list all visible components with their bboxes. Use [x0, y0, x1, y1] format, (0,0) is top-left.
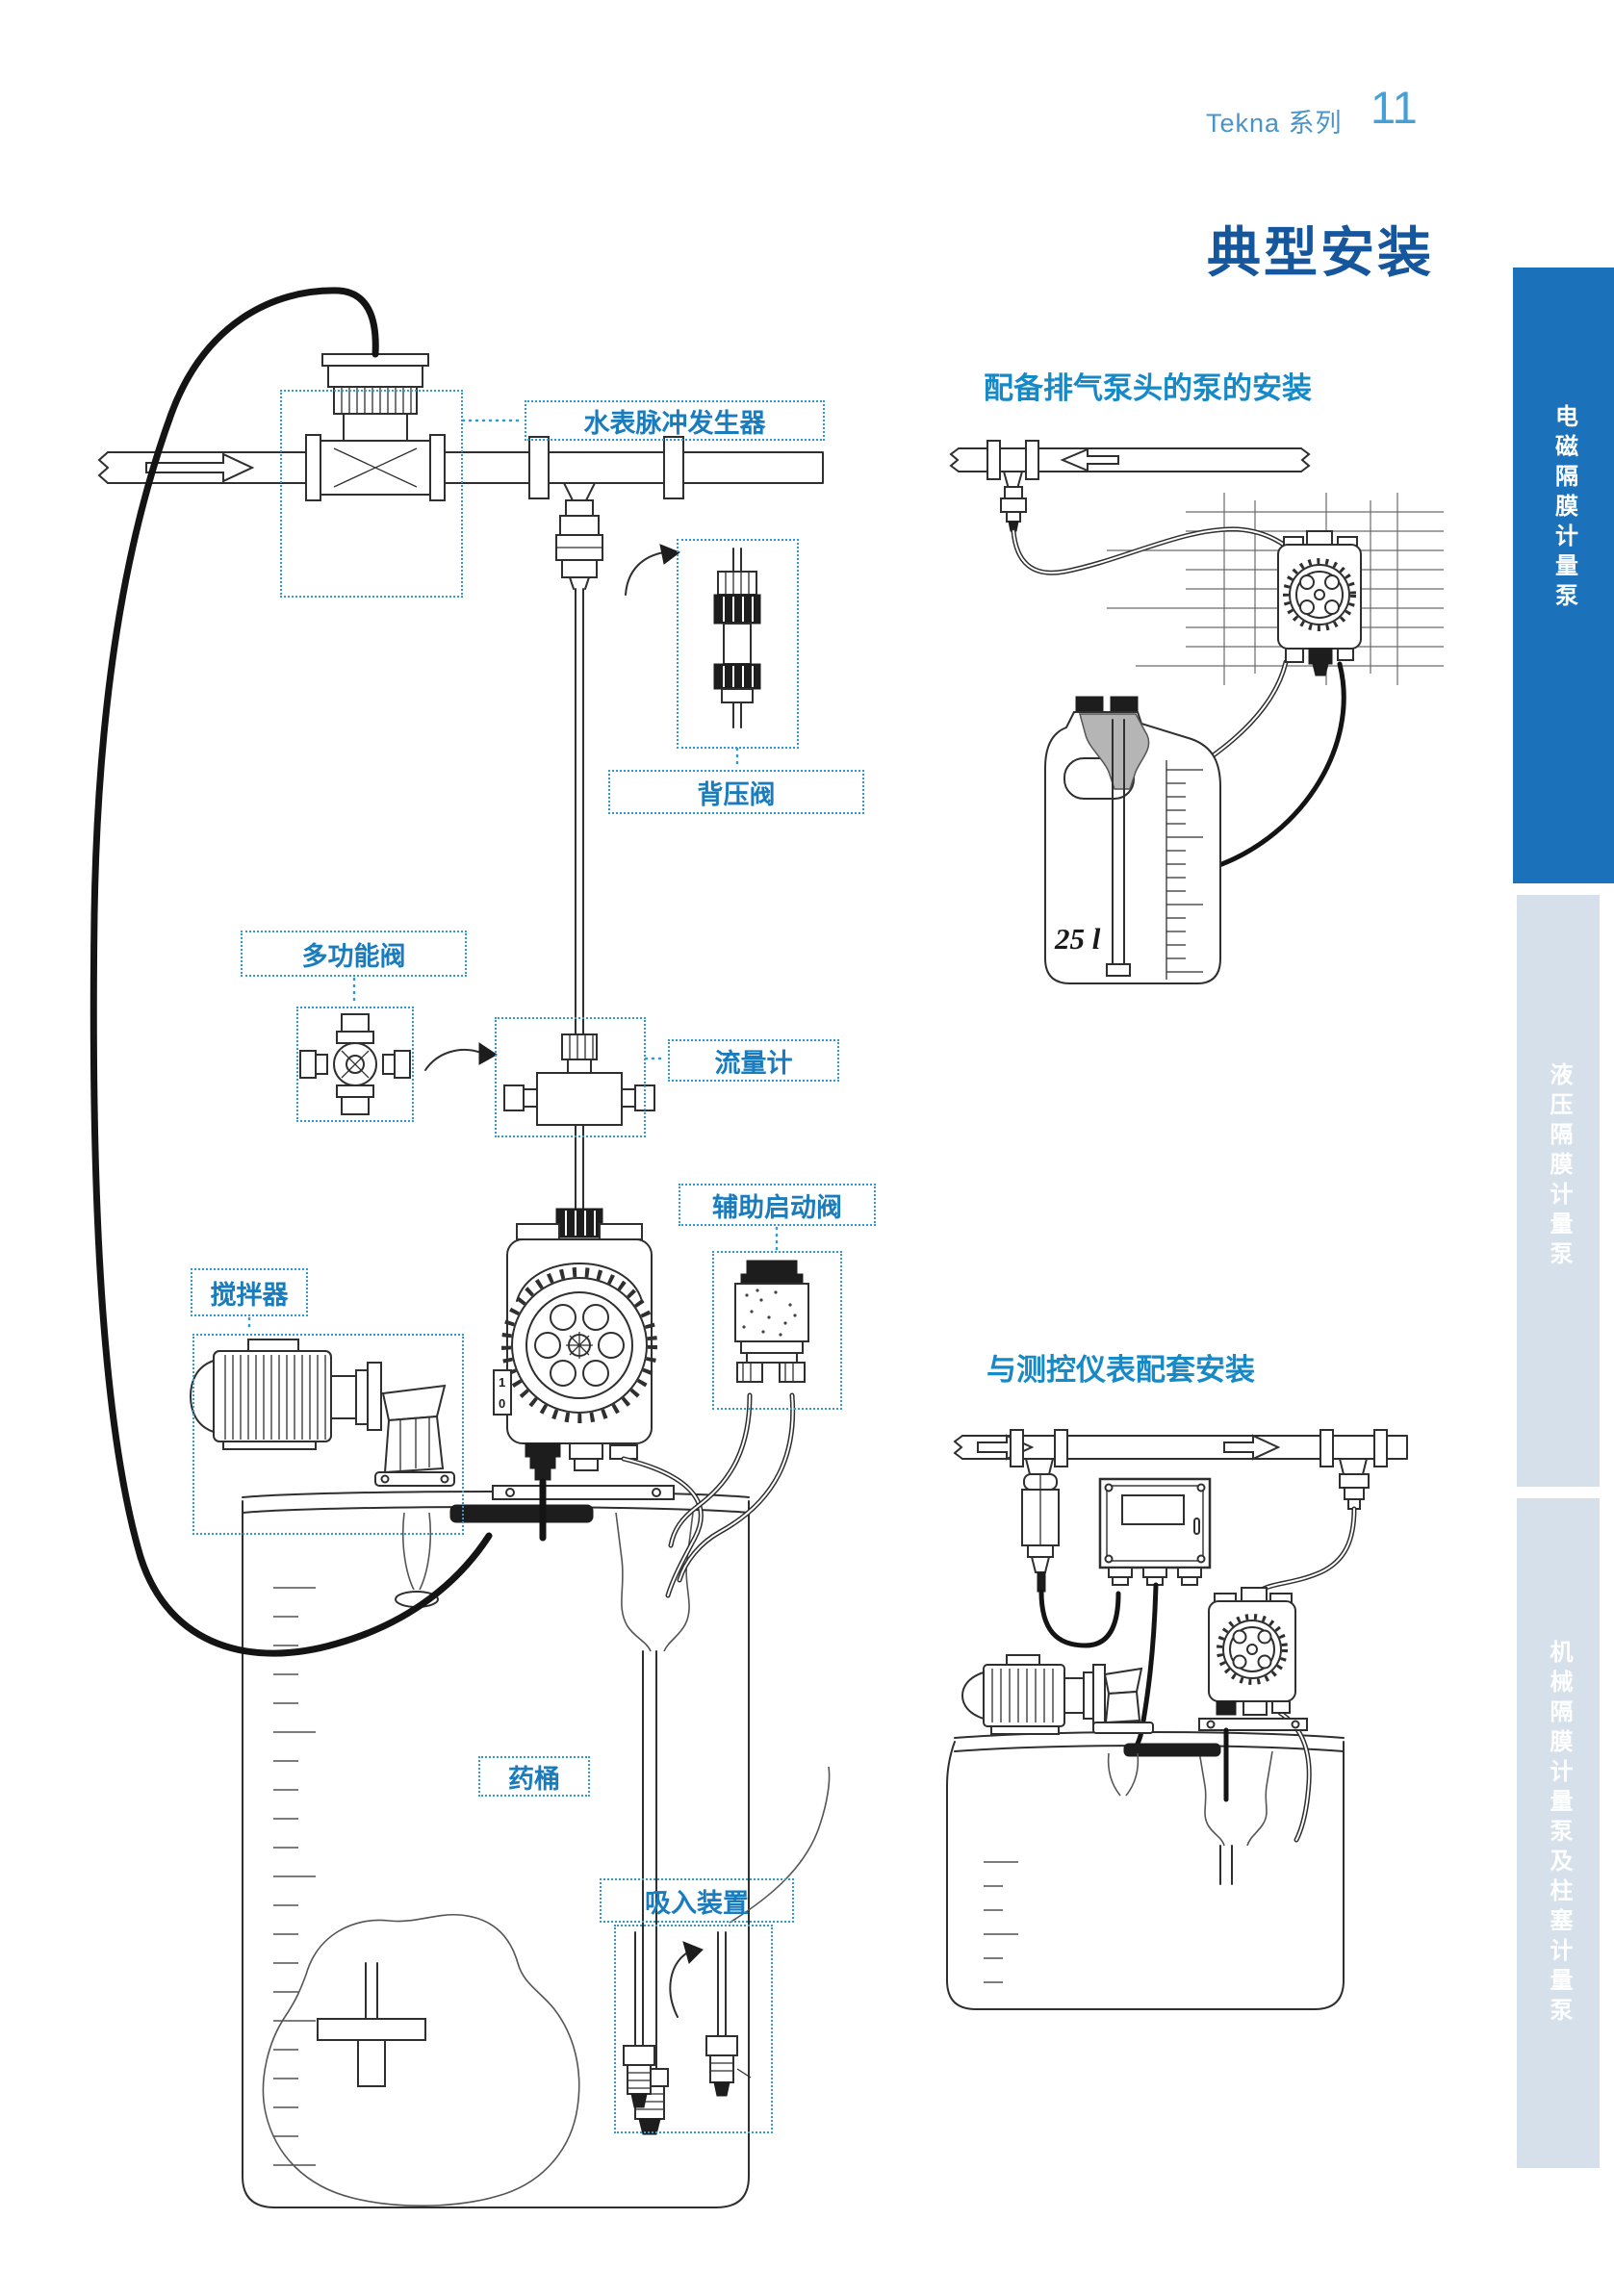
heading-instrument-install: 与测控仪表配套安装 — [986, 1345, 1255, 1389]
metering-pump-icon: 1 0 — [493, 1209, 674, 1538]
metering-pump-icon — [1278, 531, 1361, 676]
diagrams-canvas: 1 0 — [0, 0, 1614, 2296]
page-number: 11 — [1371, 81, 1418, 134]
back-pressure-valve-detail-box — [677, 539, 799, 749]
agitator-label: 搅拌器 — [191, 1268, 308, 1316]
water-meter-detail-box — [280, 390, 463, 598]
degassing-pump-diagram — [951, 441, 1444, 983]
sidebar-tab-mechanical-plunger-pumps[interactable]: 机械隔膜计量泵及柱塞计量泵 — [1517, 1498, 1600, 2168]
flow-arrow-right-icon — [146, 454, 252, 481]
catalog-page: 1 0 — [0, 0, 1614, 2296]
rotate-arrow-icon — [425, 1050, 481, 1070]
pump-switch-off-label: 0 — [499, 1396, 505, 1411]
dosing-line-lower — [576, 1125, 583, 1209]
aux-start-valve-detail-box — [712, 1251, 842, 1410]
aux-start-valve-label-text: 辅助启动阀 — [712, 1186, 842, 1224]
sensor-probe-icon — [1022, 1459, 1059, 1592]
multifunction-valve-detail-box — [296, 1007, 414, 1122]
instrument-diagram — [947, 1430, 1407, 2009]
page-header-series: Tekna 系列 — [1206, 102, 1343, 140]
controller-screen — [1122, 1495, 1184, 1524]
agitator-detail-box — [192, 1334, 464, 1535]
agitator-label-text: 搅拌器 — [211, 1274, 289, 1312]
pump-switch-on-label: 1 — [499, 1375, 505, 1390]
sensor-cable — [1041, 1592, 1118, 1645]
flow-meter-label: 流量计 — [668, 1039, 839, 1082]
tube-lines — [1255, 1509, 1354, 1595]
sidebar-tab-solenoid-diaphragm-pumps[interactable]: 电磁隔膜计量泵 — [1513, 268, 1614, 883]
pipe-icon — [955, 1430, 1407, 1467]
back-pressure-valve-label-text: 背压阀 — [698, 774, 776, 811]
wall-grid — [1107, 493, 1444, 685]
injection-valve-icon — [556, 483, 602, 589]
injection-valve-icon — [1340, 1459, 1369, 1509]
flow-meter-label-text: 流量计 — [715, 1042, 793, 1080]
flow-meter-detail-box — [495, 1017, 646, 1137]
multifunction-valve-label-text: 多功能阀 — [302, 935, 406, 973]
page-title: 典型安装 — [1182, 210, 1434, 288]
flow-arrow-left-icon — [1063, 449, 1118, 471]
suction-device-detail-box — [614, 1925, 773, 2133]
sidebar-tab-label: 电磁隔膜计量泵 — [1552, 404, 1576, 613]
suction-device-label-text: 吸入装置 — [645, 1882, 749, 1920]
rotate-arrow-icon — [626, 552, 664, 595]
suction-device-label: 吸入装置 — [600, 1878, 794, 1923]
flow-arrow-right-icon — [1224, 1436, 1278, 1459]
chemical-tank-icon — [947, 1713, 1344, 2009]
heading-degassing-pump: 配备排气泵头的泵的安装 — [984, 364, 1312, 407]
aux-start-valve-label: 辅助启动阀 — [679, 1184, 876, 1226]
chemical-tank-label-text: 药桶 — [508, 1758, 560, 1796]
water-meter-label: 水表脉冲发生器 — [525, 400, 825, 441]
dosing-line — [576, 589, 583, 1034]
metering-pump-icon — [1199, 1588, 1307, 1799]
agitator-icon — [962, 1655, 1153, 1796]
controller-box-icon — [1100, 1479, 1210, 1585]
sidebar-tab-hydraulic-diaphragm-pumps[interactable]: 液压隔膜计量泵 — [1517, 895, 1600, 1487]
water-meter-label-text: 水表脉冲发生器 — [584, 402, 766, 440]
sidebar-tab-label: 机械隔膜计量泵及柱塞计量泵 — [1547, 1640, 1570, 2028]
mounting-bar — [1124, 1744, 1220, 1756]
tank-volume-label: 25 l — [1055, 922, 1100, 957]
back-pressure-valve-label: 背压阀 — [608, 770, 864, 814]
chemical-tank-label: 药桶 — [478, 1756, 590, 1797]
multifunction-valve-label: 多功能阀 — [241, 931, 467, 977]
sidebar-tab-label: 液压隔膜计量泵 — [1547, 1062, 1570, 1271]
